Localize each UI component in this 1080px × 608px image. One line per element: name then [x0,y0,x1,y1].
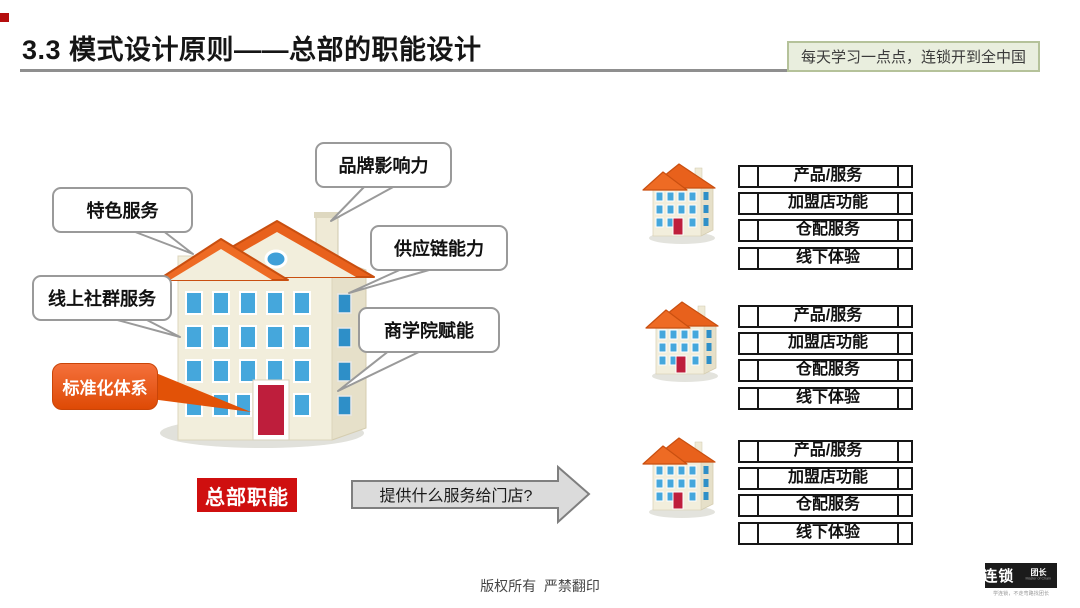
store-building-icon [646,302,718,382]
box-right-cell [897,496,911,515]
box-right-cell [897,389,911,408]
box-right-cell [897,307,911,326]
corner-marker [0,13,9,22]
store-function-box: 仓配服务 [738,494,913,517]
box-label: 加盟店功能 [759,334,897,353]
callout-brand-influence: 品牌影响力 [315,142,452,188]
copyright-notice: 版权所有 严禁翻印 [0,576,1080,596]
box-left-cell [740,442,759,461]
box-right-cell [897,167,911,186]
callout-tail-brand [331,186,395,221]
box-left-cell [740,221,759,240]
hq-building-illustration [158,212,374,448]
title-underline [20,69,790,72]
slide: 3.3 模式设计原则——总部的职能设计 每天学习一点点，连锁开到全中国 品牌影响… [0,0,1080,608]
callout-special-service: 特色服务 [52,187,193,233]
box-right-cell [897,249,911,268]
store-function-box: 产品/服务 [738,305,913,328]
box-left-cell [740,469,759,488]
hq-function-label: 总部职能 [197,478,297,512]
box-label: 线下体验 [759,389,897,408]
logo-subtext: Master of Chain [1026,577,1051,581]
box-right-cell [897,469,911,488]
box-label: 仓配服务 [759,221,897,240]
store-building-icon [643,438,715,518]
box-left-cell [740,524,759,543]
store-function-box: 产品/服务 [738,440,913,463]
store-function-box: 加盟店功能 [738,192,913,215]
building-door [253,380,289,440]
arrow-caption: 提供什么服务给门店? [356,480,556,508]
logo-primary-text: 连锁 [982,565,1014,586]
callout-standard-system: 标准化体系 [52,363,158,410]
store-function-box: 线下体验 [738,247,913,270]
store-function-box: 仓配服务 [738,359,913,382]
box-left-cell [740,167,759,186]
store-function-box: 线下体验 [738,387,913,410]
box-right-cell [897,221,911,240]
callout-tail-special [130,230,193,254]
box-right-cell [897,442,911,461]
box-left-cell [740,361,759,380]
store-function-box: 产品/服务 [738,165,913,188]
box-label: 产品/服务 [759,442,897,461]
store-building-icon [643,164,715,244]
store-function-box: 仓配服务 [738,219,913,242]
logo-tagline: 学连锁，不走弯路找团长 [993,589,1049,597]
page-title: 3.3 模式设计原则——总部的职能设计 [22,28,482,67]
box-right-cell [897,524,911,543]
box-left-cell [740,194,759,213]
slogan-box: 每天学习一点点，连锁开到全中国 [787,41,1040,72]
box-label: 线下体验 [759,524,897,543]
callout-supply-chain: 供应链能力 [370,225,508,271]
box-right-cell [897,194,911,213]
box-right-cell [897,334,911,353]
logo-secondary-text: 团长 [1031,569,1047,577]
box-left-cell [740,334,759,353]
brand-logo: 连锁 团长 Master of Chain 学连锁，不走弯路找团长 [983,563,1059,598]
box-left-cell [740,307,759,326]
box-label: 加盟店功能 [759,194,897,213]
box-left-cell [740,389,759,408]
logo-box: 连锁 团长 Master of Chain [985,563,1057,588]
box-right-cell [897,361,911,380]
box-label: 仓配服务 [759,496,897,515]
callout-online-community: 线上社群服务 [32,275,172,321]
box-label: 产品/服务 [759,307,897,326]
box-label: 产品/服务 [759,167,897,186]
box-left-cell [740,496,759,515]
box-label: 加盟店功能 [759,469,897,488]
store-function-box: 加盟店功能 [738,332,913,355]
store-function-box: 加盟店功能 [738,467,913,490]
round-window [266,251,286,267]
box-label: 线下体验 [759,249,897,268]
callout-business-school: 商学院赋能 [358,307,500,353]
store-function-box: 线下体验 [738,522,913,545]
box-label: 仓配服务 [759,361,897,380]
box-left-cell [740,249,759,268]
